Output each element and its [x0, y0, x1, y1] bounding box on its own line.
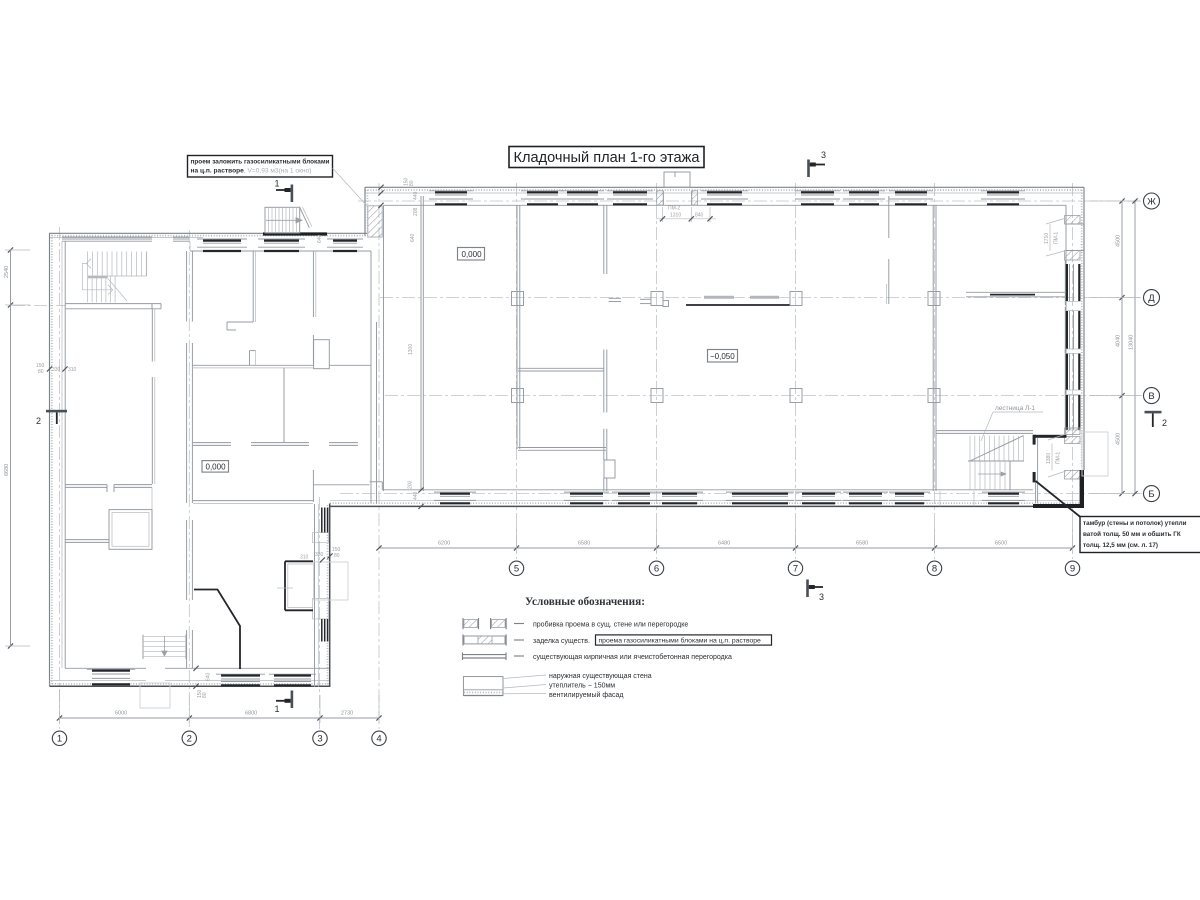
svg-text:лестница Л-1: лестница Л-1 — [995, 405, 1035, 412]
svg-text:80: 80 — [334, 553, 340, 559]
svg-text:4500: 4500 — [1116, 235, 1122, 247]
svg-text:Ж: Ж — [1147, 197, 1156, 208]
svg-text:7: 7 — [793, 564, 798, 575]
svg-text:ПМ-1: ПМ-1 — [1054, 232, 1060, 244]
svg-text:вентилируемый фасад: вентилируемый фасад — [549, 691, 623, 699]
svg-text:13040: 13040 — [1129, 335, 1135, 350]
svg-text:3: 3 — [821, 150, 826, 160]
svg-text:80: 80 — [409, 180, 415, 186]
svg-text:6580: 6580 — [578, 541, 590, 547]
svg-text:208: 208 — [413, 207, 419, 216]
svg-text:2: 2 — [1162, 418, 1167, 428]
svg-text:8: 8 — [932, 564, 937, 575]
svg-text:1: 1 — [275, 179, 280, 189]
svg-text:пробивка проема в сущ. стене: пробивка проема в сущ. стене или перегор… — [533, 621, 688, 629]
svg-text:ПМ-2: ПМ-2 — [668, 206, 680, 212]
svg-text:4040: 4040 — [1116, 335, 1122, 347]
svg-text:80: 80 — [202, 692, 208, 698]
svg-text:−0,050: −0,050 — [710, 352, 735, 361]
svg-text:ПМ-1: ПМ-1 — [1056, 452, 1062, 464]
svg-text:6580: 6580 — [856, 541, 868, 547]
svg-text:440: 440 — [413, 191, 419, 200]
svg-text:1: 1 — [57, 734, 62, 745]
svg-text:0,000: 0,000 — [462, 250, 483, 259]
svg-text:6000: 6000 — [115, 711, 127, 717]
svg-text:тамбур (стены и потолок) утепл: тамбур (стены и потолок) утепли — [1083, 519, 1187, 527]
svg-text:2540: 2540 — [4, 266, 10, 278]
svg-text:проем заложить газосиликатными: проем заложить газосиликатными блоками — [191, 158, 330, 166]
svg-text:0,000: 0,000 — [206, 463, 227, 472]
svg-text:6680: 6680 — [4, 464, 10, 476]
svg-text:1710: 1710 — [1044, 233, 1050, 244]
svg-text:6: 6 — [654, 564, 659, 575]
svg-text:2730: 2730 — [341, 711, 353, 717]
svg-text:6480: 6480 — [718, 541, 730, 547]
svg-text:проема газосиликатными блоками: проема газосиликатными блоками на ц.п. р… — [599, 637, 762, 645]
svg-text:1310: 1310 — [670, 213, 681, 219]
svg-text:4: 4 — [376, 734, 381, 745]
svg-text:440: 440 — [413, 491, 419, 500]
svg-text:наружная существующая стена: наружная существующая стена — [549, 673, 652, 680]
svg-text:2: 2 — [187, 734, 192, 745]
svg-text:толщ. 12,5 мм (см. л. 17): толщ. 12,5 мм (см. л. 17) — [1083, 542, 1158, 549]
svg-text:640: 640 — [410, 233, 416, 242]
svg-text:В: В — [1148, 391, 1154, 402]
svg-text:6200: 6200 — [438, 541, 450, 547]
svg-text:3: 3 — [819, 592, 824, 602]
svg-text:6800: 6800 — [245, 711, 257, 717]
svg-text:1380: 1380 — [1046, 453, 1052, 464]
svg-text:640: 640 — [317, 234, 323, 243]
svg-text:утеплитель − 150мм: утеплитель − 150мм — [549, 682, 615, 689]
svg-text:ватой толщ. 50 мм и обшить ГК: ватой толщ. 50 мм и обшить ГК — [1083, 530, 1181, 538]
svg-text:330: 330 — [315, 552, 324, 558]
svg-text:6500: 6500 — [995, 541, 1007, 547]
svg-text:5: 5 — [514, 564, 519, 575]
svg-text:существующая кирпичная или яче: существующая кирпичная или ячеистобетонн… — [533, 653, 732, 661]
svg-text:80: 80 — [38, 369, 44, 375]
svg-text:310: 310 — [68, 367, 77, 373]
svg-text:330: 330 — [52, 367, 61, 373]
svg-text:4500: 4500 — [1116, 433, 1122, 445]
svg-text:Б: Б — [1148, 489, 1154, 500]
svg-text:3: 3 — [317, 734, 322, 745]
svg-text:310: 310 — [300, 555, 309, 561]
svg-text:840: 840 — [695, 213, 704, 219]
svg-text:2: 2 — [36, 416, 41, 426]
svg-text:Д: Д — [1148, 293, 1155, 304]
svg-text:640: 640 — [206, 672, 212, 681]
svg-text:9: 9 — [1070, 564, 1075, 575]
svg-text:заделка существ.: заделка существ. — [533, 638, 590, 645]
svg-text:200: 200 — [408, 480, 414, 489]
svg-text:Условные обозначения:: Условные обозначения: — [525, 594, 645, 608]
svg-text:на ц.п. растворе, V=0,93 м3(на: на ц.п. растворе, V=0,93 м3(на 1 окно) — [191, 168, 312, 175]
svg-text:Кладочный план 1-го этажа: Кладочный план 1-го этажа — [514, 150, 701, 166]
svg-text:1: 1 — [275, 704, 280, 714]
svg-text:1300: 1300 — [408, 344, 414, 355]
